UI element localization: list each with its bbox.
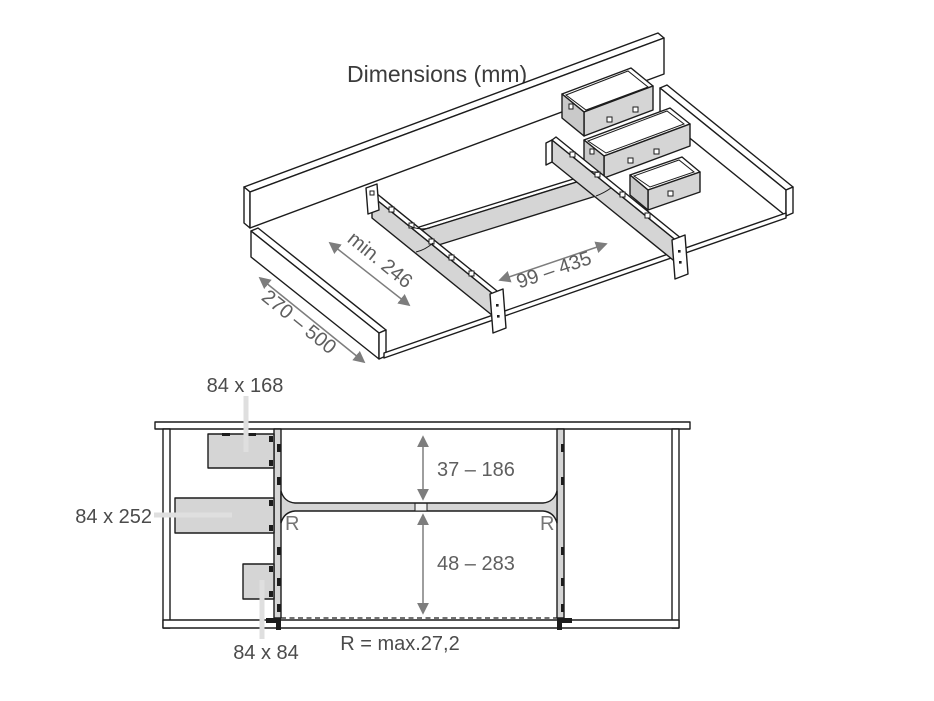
plan-divider-slots (277, 444, 565, 612)
left-divider-back-bracket (366, 184, 379, 214)
dim-front-compartment: 48 – 283 (437, 553, 515, 575)
plan-view: 84 x 168 84 x 252 84 x 84 37 – 186 48 – … (75, 375, 690, 664)
plan-right-divider (557, 429, 564, 618)
radius-mark-right: R (540, 513, 554, 535)
plan-left-divider (274, 429, 281, 618)
label-84x84: 84 x 84 (233, 642, 299, 664)
left-divider-front-bracket (490, 289, 506, 333)
plan-left-wall (163, 429, 170, 628)
plan-right-wall (672, 429, 679, 628)
cross-divider (416, 172, 596, 252)
right-divider-front-bracket (672, 235, 688, 279)
page-title: Dimensions (mm) (347, 61, 527, 87)
radius-mark-left: R (285, 513, 299, 535)
dim-back-compartment: 37 – 186 (437, 459, 515, 481)
radius-note: R = max.27,2 (340, 633, 460, 655)
drawing-canvas: Dimensions (mm) (0, 0, 934, 701)
plan-front-wall (163, 620, 679, 628)
plan-back-rail (155, 422, 690, 429)
label-84x168: 84 x 168 (207, 375, 284, 397)
plan-box-84x168 (208, 434, 274, 468)
label-84x252: 84 x 252 (75, 506, 152, 528)
technical-drawing-page: Dimensions (mm) (0, 0, 934, 701)
plan-cross-divider-joint (415, 504, 427, 511)
